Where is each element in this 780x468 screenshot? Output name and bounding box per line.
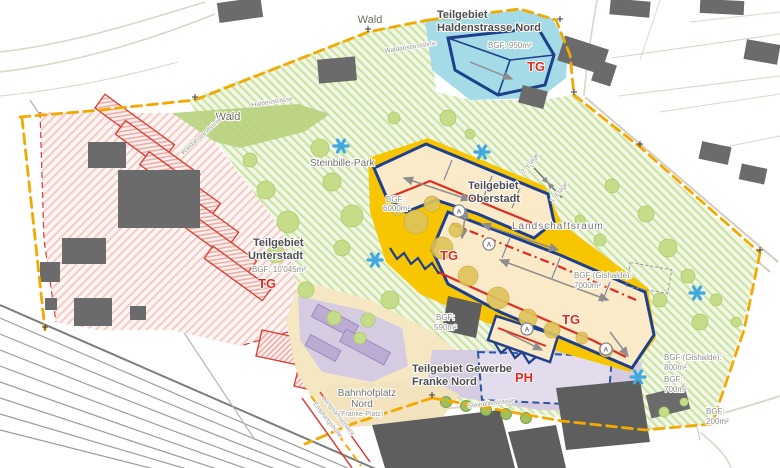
- bgf-700-1: BGF:: [664, 375, 683, 384]
- site-plan-page: A A A A Teilgebiet Haldenstrasse Nord BG…: [0, 0, 780, 468]
- ph-marker: PH: [515, 370, 533, 385]
- wald-label-top: Wald: [358, 14, 383, 26]
- access-marker-a: A: [487, 242, 492, 249]
- bahnhofplatz-2: Nord: [351, 399, 373, 410]
- bgf-800-2: 800m²: [664, 363, 687, 372]
- zone-title-oberstadt-1: Teilgebiet: [468, 180, 519, 192]
- access-marker-a: A: [525, 327, 530, 334]
- tg-marker-oberstadt-2: TG: [562, 312, 580, 327]
- zone-title-unterstadt-1: Teilgebiet: [253, 237, 304, 249]
- bgf-label-950: BGF: 950m²: [488, 41, 532, 50]
- bgf-200-1: BGF:: [706, 407, 725, 416]
- tg-marker-unterstadt: TG: [258, 276, 276, 291]
- zone-title-gewerbe-2: Franke Nord: [412, 376, 477, 388]
- bgf-700-2: 700m²: [664, 385, 687, 394]
- access-marker-a: A: [457, 209, 462, 216]
- bgf-7000-1: BGF (Gishalde):: [574, 271, 632, 280]
- bgf-800-1: BGF (Gishalde):: [664, 353, 722, 362]
- steinbille-park-label: Steinbille-Park: [310, 158, 375, 169]
- bahnhofplatz-sub: (Franke-Platz): [339, 411, 383, 418]
- bgf-590-1: BGF:: [436, 313, 455, 322]
- access-marker-a: A: [604, 347, 609, 354]
- zone-title-haldenstrasse-2: Haldenstrasse Nord: [437, 22, 541, 34]
- bgf-10045: BGF: 10'045m²: [252, 265, 306, 274]
- landschaftsraum-label: Landschaftsraum: [512, 221, 604, 232]
- zone-title-gewerbe-1: Teilgebiet Gewerbe: [412, 363, 512, 375]
- tg-marker-haldenstrasse: TG: [527, 59, 545, 74]
- zone-title-haldenstrasse-1: Teilgebiet: [437, 9, 488, 21]
- bgf-7000-2: 7000m²: [574, 281, 601, 290]
- bgf-590-2: 590m²: [434, 323, 457, 332]
- tg-marker-oberstadt-1: TG: [440, 248, 458, 263]
- bgf-200-2: 200m²: [706, 417, 729, 426]
- bgf-6000-1: BGF:: [386, 195, 405, 204]
- bgf-6000-2: 6000m²: [383, 204, 410, 213]
- bahnhofplatz-1: Bahnhofplatz: [338, 388, 396, 399]
- site-plan-map: A A A A Teilgebiet Haldenstrasse Nord BG…: [0, 0, 780, 468]
- zone-title-oberstadt-2: Oberstadt: [468, 193, 520, 205]
- zone-title-unterstadt-2: Unterstadt: [248, 250, 303, 262]
